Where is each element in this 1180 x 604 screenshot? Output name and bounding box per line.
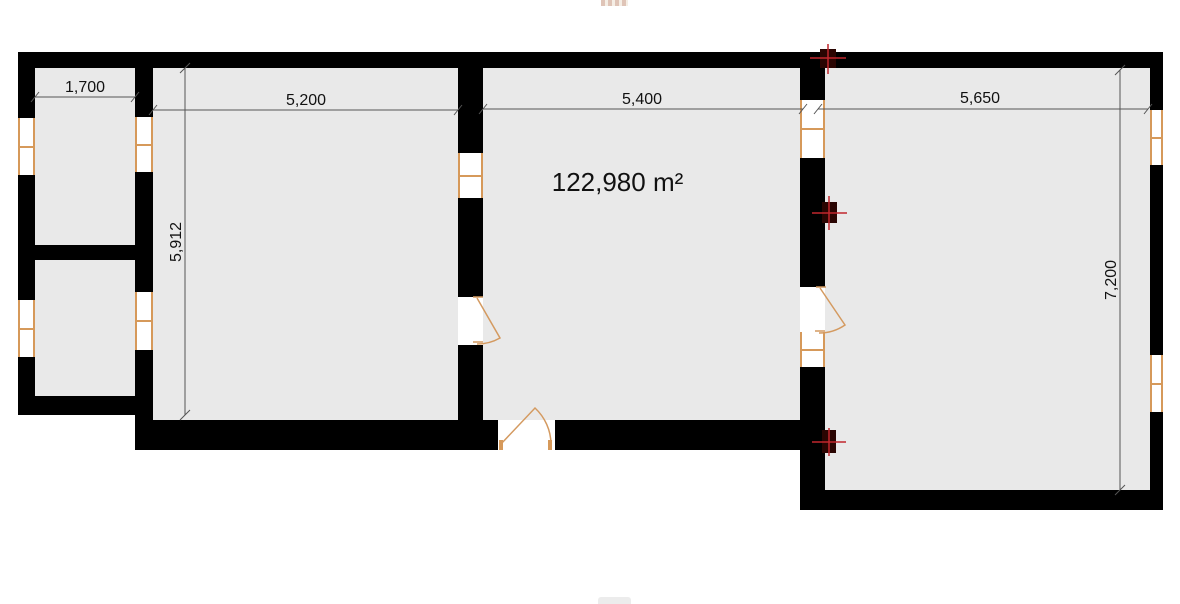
dim-label-left-room-height: 5,912 [168, 222, 185, 262]
dimension-lines [31, 63, 1152, 495]
dim-label-middle-room-width: 5,400 [622, 91, 662, 108]
survey-marker-middle [812, 196, 847, 230]
dim-label-left-room-width: 5,200 [286, 92, 326, 109]
dim-label-entry-width: 1,700 [65, 79, 105, 96]
annotation-overlay: 1,700 5,200 5,400 5,650 5,912 7,200 [0, 0, 1180, 604]
door-swing-left-middle [473, 297, 500, 344]
survey-marker-top [810, 44, 846, 74]
survey-marker-bottom [812, 428, 846, 456]
area-label: 122,980 m² [535, 167, 700, 199]
entrance-door-frames [499, 440, 552, 450]
dim-label-right-room-height: 7,200 [1103, 260, 1120, 300]
scrollbar-thumb[interactable] [598, 597, 631, 604]
door-swing-entrance [501, 408, 551, 444]
dim-label-right-room-width: 5,650 [960, 90, 1000, 107]
door-swing-middle-right [815, 287, 845, 333]
page-artifact [601, 0, 628, 6]
floor-plan-canvas: 1,700 5,200 5,400 5,650 5,912 7,200 [0, 0, 1180, 604]
